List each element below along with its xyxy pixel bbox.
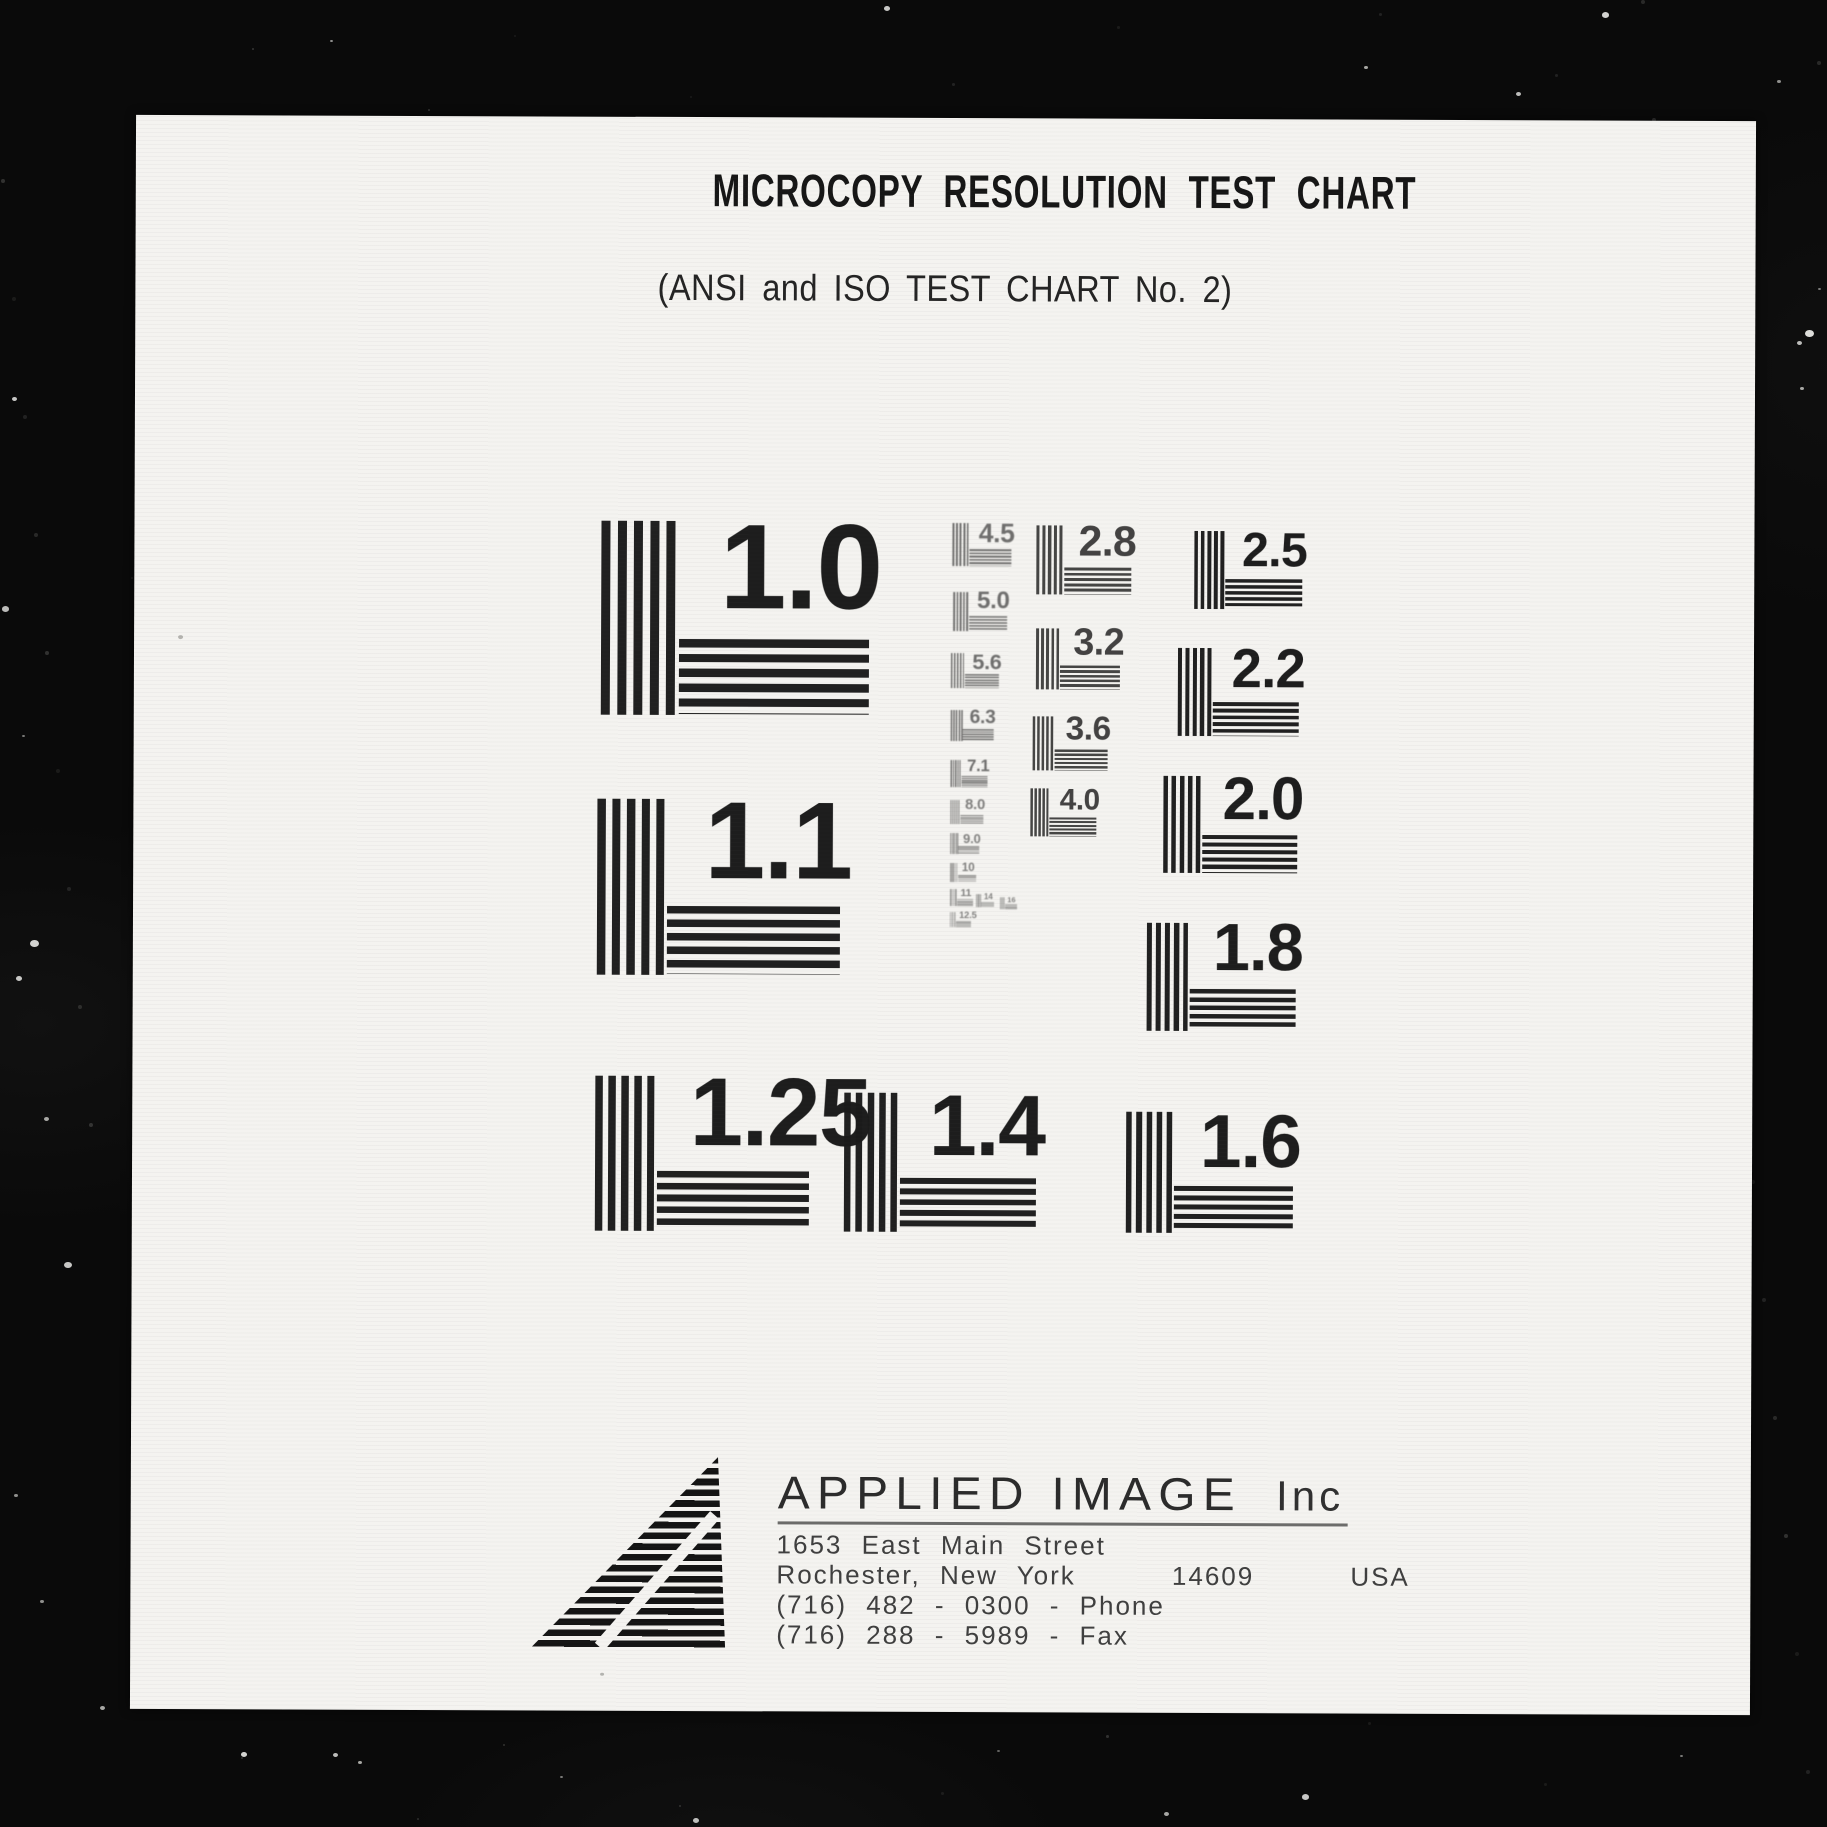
grain-speck xyxy=(679,1805,681,1807)
vertical-bars xyxy=(950,833,958,854)
vertical-bars xyxy=(595,1076,655,1231)
dust-speck xyxy=(1818,288,1821,290)
grain-speck xyxy=(1641,0,1645,4)
resolution-pattern-14: 14 xyxy=(976,894,995,907)
resolution-pattern-1.8: 1.8 xyxy=(1147,923,1301,1032)
grain-speck xyxy=(45,651,49,655)
vertical-bars xyxy=(951,653,965,688)
vertical-bars xyxy=(950,760,960,787)
dust-speck xyxy=(1800,387,1804,390)
dust-speck xyxy=(1602,12,1609,18)
horizontal-bars xyxy=(965,674,999,688)
resolution-pattern-2.2: 2.2 xyxy=(1178,648,1303,736)
dust-speck xyxy=(997,1750,1000,1752)
resolution-pattern-5.6: 5.6 xyxy=(951,653,1001,688)
grain-speck xyxy=(56,769,60,773)
grain-speck xyxy=(252,48,254,50)
grain-speck xyxy=(503,1744,505,1746)
grain-speck xyxy=(67,887,71,891)
vertical-bars xyxy=(952,523,969,566)
grain-speck xyxy=(1117,26,1120,29)
horizontal-bars xyxy=(981,902,994,907)
grain-speck xyxy=(1368,1722,1371,1725)
dust-speck xyxy=(2,606,9,612)
horizontal-bars xyxy=(960,815,984,824)
pattern-value: 11 xyxy=(960,888,971,899)
grain-speck xyxy=(1784,1534,1788,1538)
pattern-value: 5.0 xyxy=(977,589,1010,613)
horizontal-bars xyxy=(1060,666,1120,690)
horizontal-bars xyxy=(1190,989,1296,1031)
paper-speck xyxy=(600,1673,604,1676)
vertical-bars xyxy=(1147,923,1189,1031)
horizontal-bars xyxy=(970,549,1012,566)
dust-speck xyxy=(12,397,17,401)
grain-speck xyxy=(1795,1652,1799,1656)
pattern-value: 1.0 xyxy=(719,508,881,629)
horizontal-bars xyxy=(969,616,1007,631)
grain-speck xyxy=(1,179,5,183)
page-subtitle: (ANSI and ISO TEST CHART No. 2) xyxy=(575,267,1315,312)
dust-speck xyxy=(14,1494,18,1497)
dust-speck xyxy=(693,1818,699,1823)
grain-speck xyxy=(241,1757,243,1759)
company-name: APPLIED IMAGE xyxy=(778,1465,1242,1521)
dust-speck xyxy=(1777,80,1781,83)
dust-speck xyxy=(333,1753,338,1757)
dust-speck xyxy=(64,1262,72,1268)
resolution-pattern-3.6: 3.6 xyxy=(1033,716,1110,770)
grain-speck xyxy=(1773,1416,1777,1420)
grain-speck xyxy=(78,1005,82,1009)
resolution-pattern-16: 16 xyxy=(1000,897,1017,909)
dust-speck xyxy=(1302,1794,1309,1800)
pattern-value: 2.2 xyxy=(1232,642,1306,697)
resolution-pattern-2.0: 2.0 xyxy=(1163,776,1301,874)
page-subtitle-text: (ANSI and ISO TEST CHART No. 2) xyxy=(658,267,1233,311)
resolution-pattern-6.3: 6.3 xyxy=(951,710,995,741)
pattern-value: 4.5 xyxy=(979,520,1015,547)
grain-speck xyxy=(34,533,38,537)
pattern-value: 5.6 xyxy=(972,651,1001,673)
vertical-bars xyxy=(597,799,665,975)
horizontal-bars xyxy=(959,846,980,854)
vertical-bars xyxy=(1030,788,1049,836)
horizontal-bars xyxy=(1174,1186,1293,1233)
resolution-pattern-12.5: 12.5 xyxy=(950,912,971,927)
vertical-bars xyxy=(601,521,676,715)
vertical-bars xyxy=(950,912,956,927)
resolution-pattern-10: 10 xyxy=(950,863,977,882)
resolution-pattern-3.2: 3.2 xyxy=(1036,628,1123,689)
horizontal-bars xyxy=(667,906,840,974)
vertical-bars xyxy=(953,592,968,631)
resolution-pattern-1.4: 1.4 xyxy=(844,1093,1042,1233)
grain-speck xyxy=(23,415,27,419)
horizontal-bars xyxy=(1225,579,1302,609)
pattern-value: 7.1 xyxy=(967,758,990,775)
pattern-value: 3.6 xyxy=(1066,713,1111,747)
resolution-pattern-1.0: 1.0 xyxy=(601,521,877,716)
dust-speck xyxy=(44,1117,49,1121)
dust-speck xyxy=(16,976,22,981)
company-suffix: Inc xyxy=(1276,1472,1344,1519)
horizontal-bars xyxy=(678,639,868,714)
pattern-value: 2.8 xyxy=(1078,521,1136,564)
company-underline xyxy=(778,1521,1348,1526)
company-name-row: APPLIED IMAGEInc xyxy=(778,1465,1345,1521)
horizontal-bars xyxy=(1054,749,1107,770)
vertical-bars xyxy=(1126,1112,1173,1233)
vertical-bars xyxy=(844,1093,898,1232)
dust-speck xyxy=(30,940,39,947)
resolution-pattern-11: 11 xyxy=(950,889,974,906)
grain-speck xyxy=(1544,1783,1547,1786)
horizontal-bars xyxy=(1064,568,1132,595)
vertical-bars xyxy=(1033,716,1054,770)
dust-speck xyxy=(1164,1812,1169,1816)
pattern-value: 6.3 xyxy=(970,708,996,727)
grain-speck xyxy=(12,297,16,301)
horizontal-bars xyxy=(899,1178,1035,1232)
pattern-value: 8.0 xyxy=(965,798,985,813)
grain-speck xyxy=(1817,61,1821,65)
resolution-pattern-8.0: 8.0 xyxy=(950,800,984,824)
resolution-pattern-9.0: 9.0 xyxy=(950,833,980,854)
grain-speck xyxy=(131,577,133,579)
grain-speck xyxy=(1555,74,1558,77)
pattern-value: 9.0 xyxy=(963,832,981,845)
pattern-value: 16 xyxy=(1007,896,1015,903)
horizontal-bars xyxy=(1213,702,1299,736)
dust-speck xyxy=(100,1706,105,1710)
address-phone: (716) 482 - 0300 - Phone xyxy=(776,1589,1409,1621)
grain-speck xyxy=(690,96,692,98)
vertical-bars xyxy=(1036,525,1063,594)
dust-speck xyxy=(241,1752,247,1757)
address-street: 1653 East Main Street xyxy=(777,1529,1410,1561)
pattern-value: 1.1 xyxy=(704,787,851,897)
grain-speck xyxy=(428,109,430,111)
resolution-pattern-4.0: 4.0 xyxy=(1030,788,1098,836)
resolution-pattern-2.8: 2.8 xyxy=(1036,525,1134,594)
address-block: 1653 East Main Street Rochester, New Yor… xyxy=(776,1529,1410,1651)
vertical-bars xyxy=(950,863,957,882)
grain-speck xyxy=(941,1792,944,1795)
dust-speck xyxy=(1680,1755,1683,1757)
dust-speck xyxy=(884,6,890,11)
resolution-pattern-1.6: 1.6 xyxy=(1126,1112,1298,1234)
grain-speck xyxy=(1806,1770,1810,1774)
pattern-value: 1.4 xyxy=(929,1083,1045,1170)
horizontal-bars xyxy=(957,899,974,906)
pattern-value: 14 xyxy=(984,893,993,901)
grain-speck xyxy=(417,1818,419,1820)
address-city: Rochester, New York 14609 USA xyxy=(776,1559,1409,1591)
pattern-value: 1.8 xyxy=(1213,915,1303,982)
vertical-bars xyxy=(1194,531,1224,609)
dust-speck xyxy=(40,1600,44,1603)
horizontal-bars xyxy=(956,921,971,927)
horizontal-bars xyxy=(1005,905,1017,910)
resolution-pattern-4.5: 4.5 xyxy=(952,523,1013,566)
dust-speck xyxy=(1797,341,1802,345)
applied-image-logo xyxy=(528,1456,727,1651)
dust-speck xyxy=(358,1761,362,1764)
grain-speck xyxy=(952,83,955,86)
vertical-bars xyxy=(950,800,959,824)
grain-speck xyxy=(1379,13,1382,16)
horizontal-bars xyxy=(958,875,977,882)
dust-speck xyxy=(1364,66,1368,69)
address-fax: (716) 288 - 5989 - Fax xyxy=(776,1619,1409,1651)
paper-speck xyxy=(178,635,183,639)
resolution-pattern-1.25: 1.25 xyxy=(595,1076,816,1232)
chart-page: MICROCOPY RESOLUTION TEST CHART (ANSI an… xyxy=(130,115,1756,1715)
vertical-bars xyxy=(1178,648,1212,736)
vertical-bars xyxy=(951,710,963,741)
pattern-value: 2.0 xyxy=(1222,769,1303,829)
dust-speck xyxy=(560,1776,563,1778)
vertical-bars xyxy=(1036,628,1060,689)
vertical-bars xyxy=(950,889,957,906)
pattern-value: 1.6 xyxy=(1200,1104,1301,1179)
pattern-value: 10 xyxy=(962,862,975,874)
horizontal-bars xyxy=(963,729,993,741)
resolution-pattern-2.5: 2.5 xyxy=(1194,531,1305,609)
pattern-value: 4.0 xyxy=(1060,785,1100,815)
dust-speck xyxy=(1805,330,1814,337)
grain-speck xyxy=(1106,1735,1109,1738)
dust-speck xyxy=(330,40,333,42)
resolution-pattern-1.1: 1.1 xyxy=(597,799,848,976)
horizontal-bars xyxy=(961,777,987,787)
page-title-text: MICROCOPY RESOLUTION TEST CHART xyxy=(712,163,1416,220)
pattern-value: 12.5 xyxy=(959,911,977,920)
page-title: MICROCOPY RESOLUTION TEST CHART xyxy=(576,163,1316,220)
grain-speck xyxy=(89,1123,93,1127)
vertical-bars xyxy=(1163,776,1201,873)
grain-speck xyxy=(1762,1298,1766,1302)
horizontal-bars xyxy=(1049,818,1096,837)
dust-speck xyxy=(1516,92,1521,96)
pattern-value: 2.5 xyxy=(1242,526,1307,575)
pattern-value: 3.2 xyxy=(1073,624,1124,662)
resolution-pattern-5.0: 5.0 xyxy=(953,592,1009,631)
scanned-film-frame: MICROCOPY RESOLUTION TEST CHART (ANSI an… xyxy=(0,0,1827,1827)
horizontal-bars xyxy=(1202,835,1297,873)
dust-speck xyxy=(22,735,25,737)
grain-speck xyxy=(514,35,516,37)
resolution-pattern-7.1: 7.1 xyxy=(950,760,988,787)
horizontal-bars xyxy=(657,1170,809,1230)
